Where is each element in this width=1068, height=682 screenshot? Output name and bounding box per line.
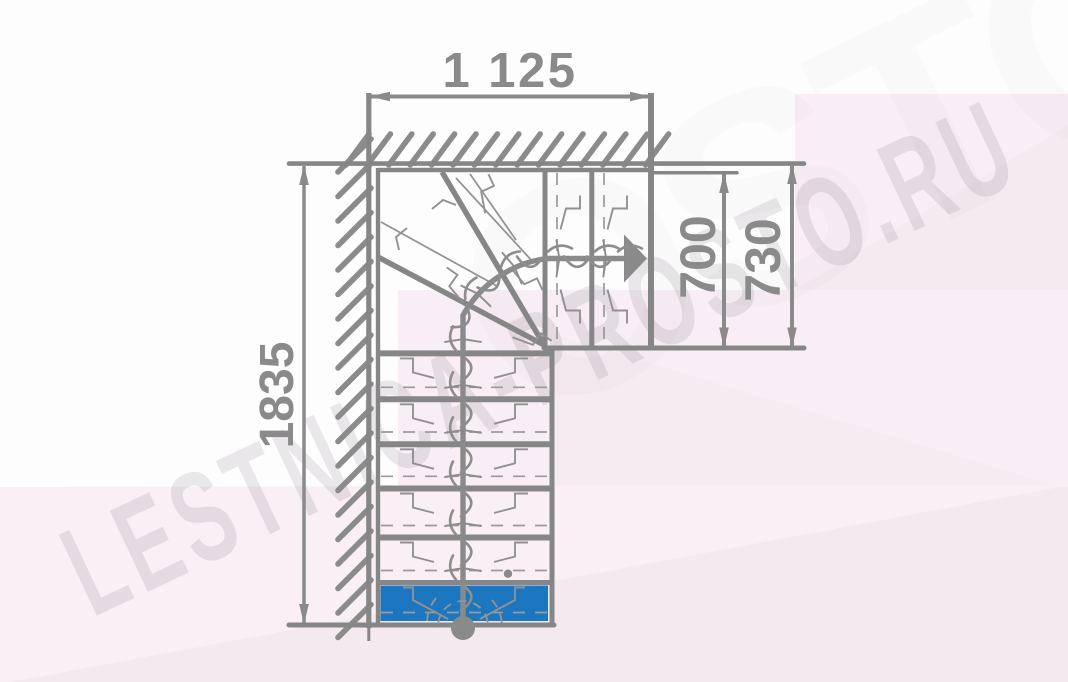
svg-text:730: 730 (735, 218, 791, 301)
svg-text:1835: 1835 (251, 342, 304, 449)
svg-text:700: 700 (670, 215, 726, 298)
svg-text:1 125: 1 125 (442, 44, 577, 98)
